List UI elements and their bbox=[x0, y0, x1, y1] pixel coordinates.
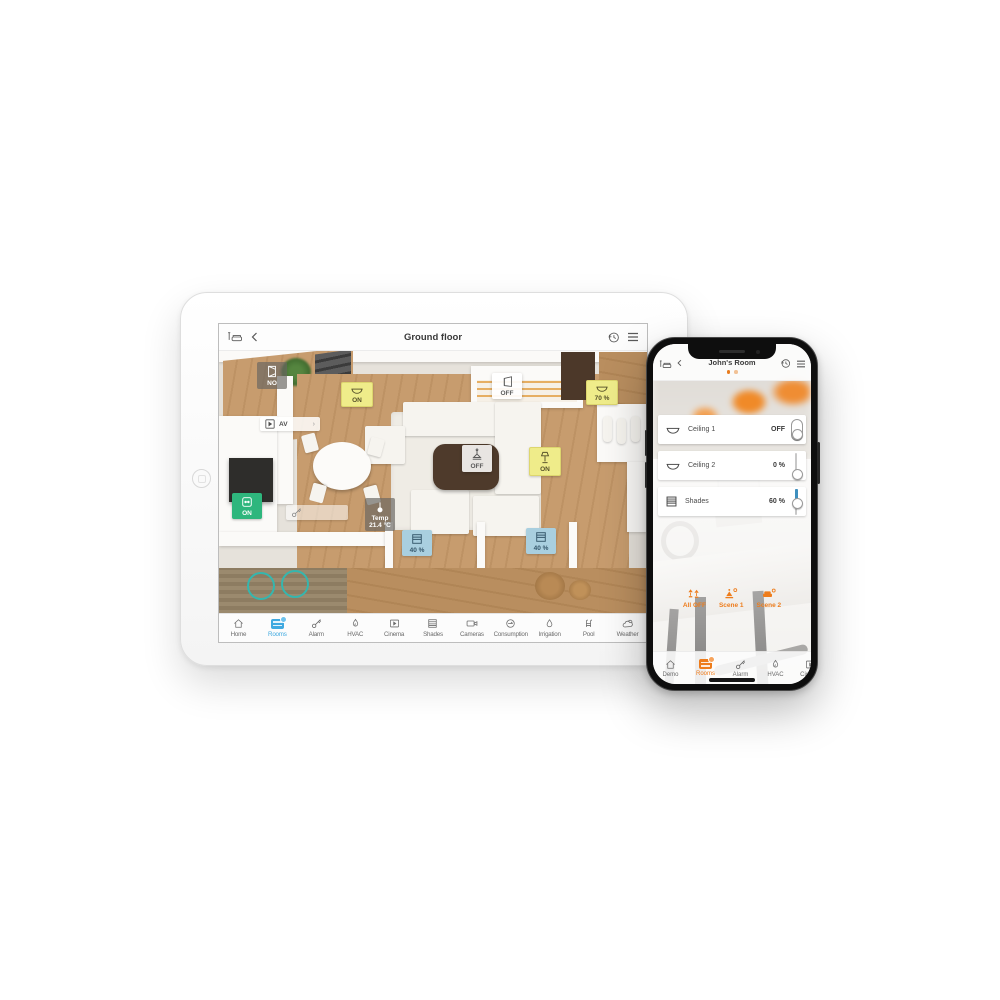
phone-notch bbox=[688, 344, 776, 359]
ceiling-light-icon bbox=[665, 461, 681, 471]
tab-rooms[interactable]: Rooms bbox=[258, 619, 297, 638]
cinema-icon bbox=[389, 618, 400, 629]
chevron-right-icon: › bbox=[313, 421, 315, 428]
floorplan-dining-table bbox=[313, 442, 371, 490]
tab-alarm[interactable]: Alarm bbox=[297, 618, 336, 638]
pool-ladder-icon bbox=[583, 618, 594, 629]
vertical-toggle[interactable] bbox=[790, 417, 802, 443]
floorplan-wall-left bbox=[277, 376, 293, 504]
phone-speaker bbox=[719, 350, 745, 353]
camera-icon bbox=[466, 618, 478, 629]
tablet-home-button[interactable] bbox=[192, 469, 211, 488]
vertical-slider[interactable] bbox=[790, 453, 802, 479]
key-icon bbox=[735, 659, 746, 670]
badge-label: Temp bbox=[372, 515, 389, 522]
tablet-page-title: Ground floor bbox=[219, 332, 647, 343]
page-indicator-dot bbox=[734, 370, 738, 374]
ceiling-light-icon bbox=[665, 425, 681, 435]
window-icon bbox=[266, 365, 278, 378]
phone-screen: John's Room Ceiling 1 OFF bbox=[653, 344, 811, 684]
rooms-icon bbox=[699, 659, 712, 669]
weather-icon bbox=[622, 618, 634, 629]
tab-hvac[interactable]: HVAC bbox=[758, 652, 793, 684]
badge-shade-left[interactable]: 40 % bbox=[402, 530, 432, 556]
flame-icon bbox=[770, 659, 781, 670]
control-card-ceiling-1[interactable]: Ceiling 1 OFF bbox=[658, 415, 806, 444]
badge-shade-right[interactable]: 40 % bbox=[526, 528, 556, 554]
tab-cinema[interactable]: Cinema bbox=[375, 618, 414, 638]
phone-power-button[interactable] bbox=[817, 442, 820, 484]
tab-consumption[interactable]: Consumption bbox=[491, 618, 530, 638]
badge-label: ON bbox=[352, 397, 362, 404]
floorplan-stool bbox=[535, 572, 565, 600]
badge-door-off[interactable]: OFF bbox=[492, 373, 522, 399]
scene-all-off-button[interactable]: All OFF bbox=[683, 588, 706, 609]
vertical-slider[interactable] bbox=[790, 489, 802, 515]
control-card-ceiling-2[interactable]: Ceiling 2 0 % bbox=[658, 451, 806, 480]
phone-home-indicator[interactable] bbox=[709, 678, 755, 682]
tab-hvac[interactable]: HVAC bbox=[336, 618, 375, 638]
hamburger-menu-icon[interactable] bbox=[627, 332, 639, 342]
tab-home[interactable]: Home bbox=[219, 618, 258, 638]
tab-cinema[interactable]: Cinema bbox=[793, 652, 811, 684]
shades-icon bbox=[427, 618, 438, 629]
badge-label: 70 % bbox=[595, 395, 610, 402]
badge-value: 21.4 °C bbox=[369, 522, 391, 529]
history-clock-icon[interactable] bbox=[607, 331, 620, 344]
key-icon bbox=[311, 618, 322, 629]
home-icon bbox=[665, 659, 676, 670]
scene-2-button[interactable]: Scene 2 bbox=[757, 588, 782, 609]
av-control-pill[interactable]: AV › bbox=[260, 417, 320, 431]
floorplan-bottom-wall bbox=[219, 532, 389, 546]
floorplan-stool bbox=[569, 580, 591, 600]
history-clock-icon[interactable] bbox=[780, 358, 791, 369]
page-indicator bbox=[653, 370, 811, 374]
floor-plan[interactable]: NO ON OFF bbox=[219, 350, 647, 614]
badge-ceiling-on[interactable]: ON bbox=[341, 382, 373, 407]
floorplan-robe bbox=[603, 416, 612, 442]
droplet-icon bbox=[544, 618, 555, 629]
badge-socket-on[interactable]: ON bbox=[232, 493, 262, 519]
lamps-off-icon bbox=[687, 588, 701, 600]
tablet-top-bar: Ground floor bbox=[219, 324, 647, 351]
floorplan-bicycle-wheel bbox=[247, 572, 275, 600]
phone-volume-button[interactable] bbox=[645, 430, 648, 456]
tab-demo[interactable]: Demo bbox=[653, 652, 688, 684]
phone-volume-button[interactable] bbox=[645, 462, 648, 488]
meter-icon bbox=[505, 618, 516, 629]
badge-label: 40 % bbox=[534, 545, 549, 552]
shades-icon bbox=[411, 533, 423, 545]
tablet-device: Ground floor bbox=[180, 292, 688, 666]
control-name: Ceiling 2 bbox=[688, 462, 773, 469]
badge-window-no[interactable]: NO bbox=[257, 362, 287, 389]
ceiling-light-icon bbox=[595, 384, 609, 393]
scene-buttons-row: All OFF Scene 1 Scene 2 bbox=[653, 588, 811, 609]
shades-icon bbox=[535, 531, 547, 543]
ceiling-light-icon bbox=[350, 386, 364, 395]
shades-icon bbox=[665, 495, 678, 508]
tab-cameras[interactable]: Cameras bbox=[452, 618, 491, 638]
av-label: AV bbox=[279, 421, 288, 428]
door-icon bbox=[501, 376, 514, 388]
play-icon bbox=[265, 419, 275, 429]
key-scene-pill[interactable] bbox=[286, 505, 348, 520]
badge-label: 40 % bbox=[410, 547, 425, 554]
scene-1-button[interactable]: Scene 1 bbox=[719, 588, 744, 609]
home-icon bbox=[233, 618, 244, 629]
control-card-shades[interactable]: Shades 60 % bbox=[658, 487, 806, 516]
page-indicator-dot bbox=[727, 370, 731, 374]
floorplan-robe bbox=[617, 418, 626, 444]
sofa-gear-icon bbox=[762, 588, 776, 600]
control-name: Shades bbox=[685, 498, 769, 505]
phone-front-camera bbox=[756, 350, 760, 354]
product-shot: Ground floor bbox=[0, 0, 1000, 1000]
badge-ceiling-70[interactable]: 70 % bbox=[586, 380, 618, 405]
badge-pendant-off[interactable]: OFF bbox=[462, 445, 492, 472]
floorplan-robe bbox=[631, 416, 640, 442]
key-icon bbox=[291, 507, 302, 518]
socket-icon bbox=[241, 496, 253, 508]
thermometer-icon bbox=[375, 501, 385, 513]
scene-gear-icon bbox=[724, 588, 738, 600]
control-value: 60 % bbox=[769, 498, 785, 505]
control-value: 0 % bbox=[773, 462, 785, 469]
floor-lamp-icon bbox=[539, 451, 551, 464]
rooms-icon bbox=[271, 619, 284, 629]
flame-icon bbox=[350, 618, 361, 629]
cinema-icon bbox=[805, 659, 811, 670]
phone-device: John's Room Ceiling 1 OFF bbox=[646, 337, 818, 691]
badge-floorlamp-on[interactable]: ON bbox=[529, 447, 561, 476]
tablet-tab-bar: Home Rooms Alarm HVAC Cinema bbox=[219, 613, 647, 642]
hamburger-menu-icon[interactable] bbox=[796, 360, 806, 368]
badge-temperature[interactable]: Temp 21.4 °C bbox=[365, 498, 395, 531]
control-name: Ceiling 1 bbox=[688, 426, 771, 433]
floorplan-bicycle-wheel bbox=[281, 570, 309, 598]
tablet-screen: Ground floor bbox=[218, 323, 648, 643]
badge-label: OFF bbox=[471, 463, 484, 470]
badge-label: NO bbox=[267, 380, 277, 387]
tab-shades[interactable]: Shades bbox=[414, 618, 453, 638]
control-value: OFF bbox=[771, 426, 785, 433]
badge-label: ON bbox=[242, 510, 252, 517]
tab-irrigation[interactable]: Irrigation bbox=[530, 618, 569, 638]
tab-pool[interactable]: Pool bbox=[569, 618, 608, 638]
badge-label: ON bbox=[540, 466, 550, 473]
badge-label: OFF bbox=[501, 390, 514, 397]
tab-weather[interactable]: Weather bbox=[608, 618, 647, 638]
pendant-light-icon bbox=[471, 448, 483, 461]
